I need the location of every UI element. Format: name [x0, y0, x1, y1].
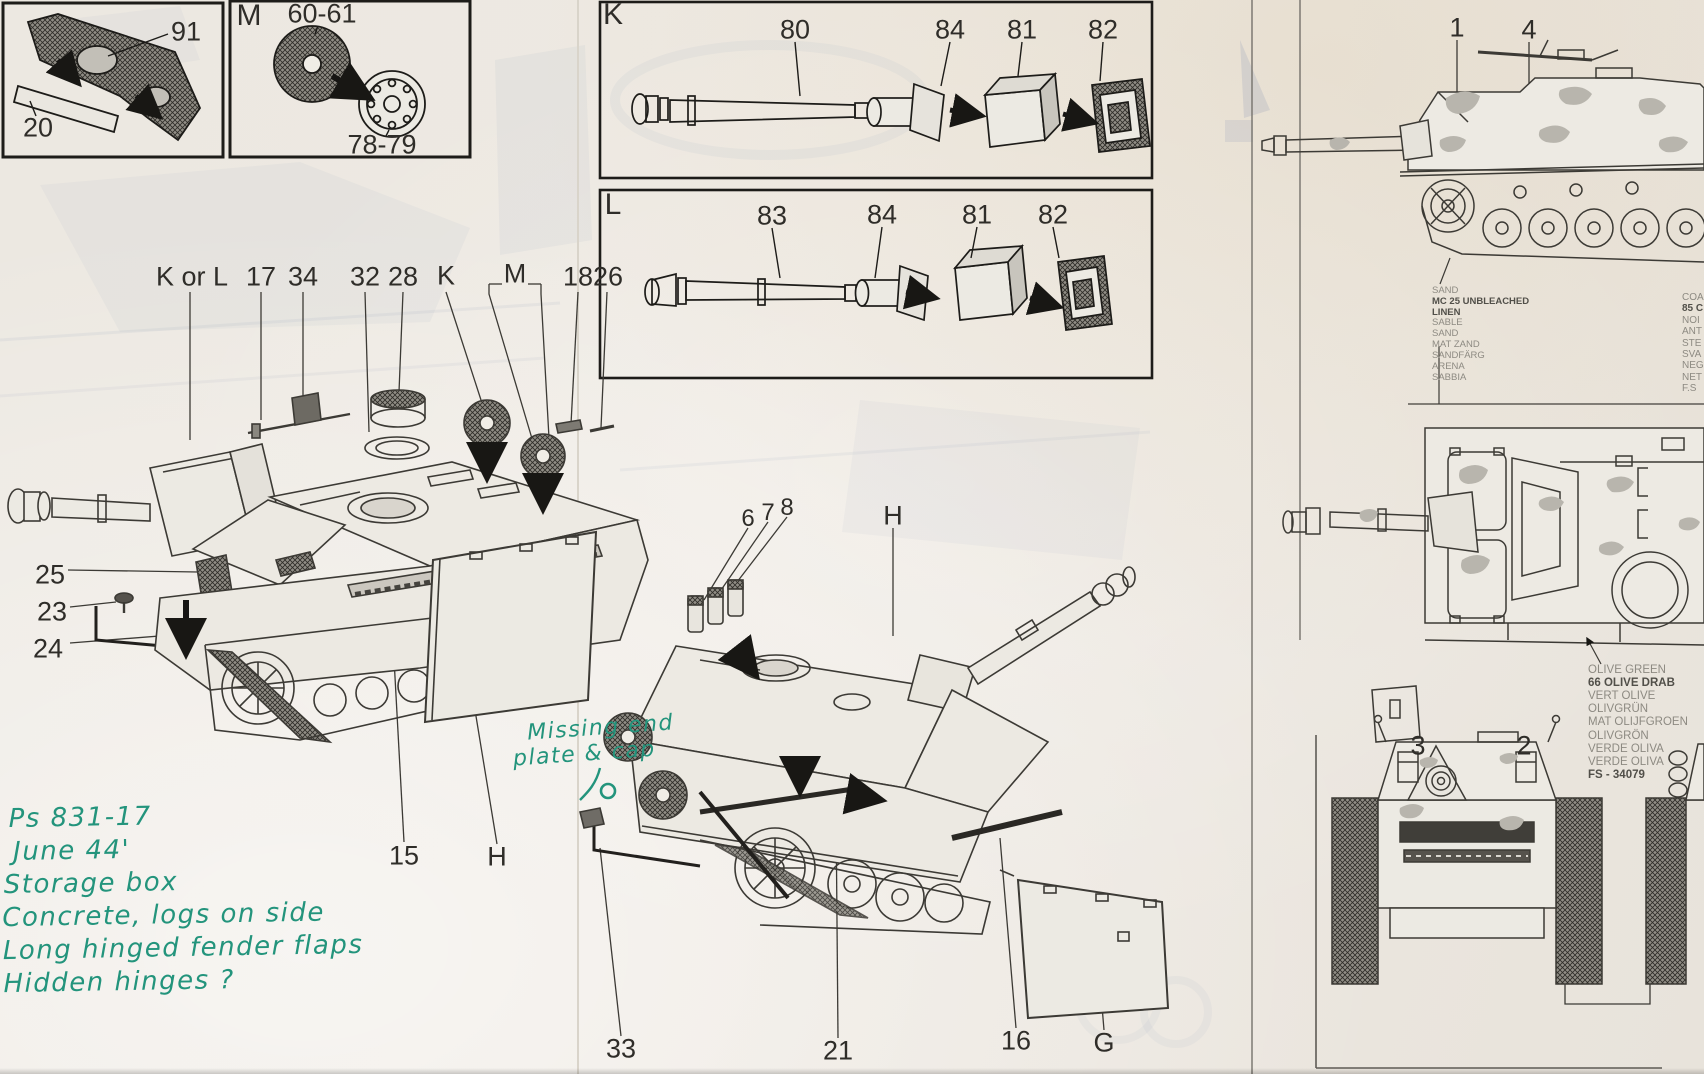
olive-line: MAT OLIJFGROEN	[1588, 716, 1688, 729]
view1-label-17: 17	[246, 262, 276, 293]
edge-line: SVA	[1682, 349, 1704, 360]
olive-line: VERDE OLIVA	[1588, 743, 1688, 756]
instruction-sheet-page: 91 20 M 60-61 78-79 K 80 84 81 82 L 83 8…	[0, 0, 1704, 1074]
handwritten-leader-marks	[580, 768, 615, 800]
olive-line: 66 OLIVE DRAB	[1588, 677, 1688, 690]
view2-label-g: G	[1093, 1028, 1114, 1059]
edge-line: ANT	[1682, 326, 1704, 337]
handwritten-note-reference: Ps 831-17 June 44' Storage box Concrete,…	[0, 797, 364, 1001]
part-label-k-82: 82	[1088, 15, 1118, 46]
view1-label-h: H	[487, 842, 507, 873]
part-label-78-79: 78-79	[347, 130, 416, 161]
view1-label-24: 24	[33, 634, 63, 665]
olive-line: FS - 34079	[1588, 769, 1688, 782]
paint-label-2: 2	[1516, 731, 1531, 762]
paint-label-3: 3	[1410, 731, 1425, 762]
view2-label-6: 6	[741, 505, 754, 533]
view2-label-21: 21	[823, 1036, 853, 1067]
handwritten-line: Long hinged fender flaps	[3, 929, 364, 968]
part-label-20: 20	[23, 113, 53, 144]
part-label-l-83: 83	[757, 201, 787, 232]
inset-l-letter: L	[605, 188, 622, 222]
olive-line: OLIVGRÜN	[1588, 703, 1688, 716]
inset-m-letter: M	[237, 0, 262, 33]
sand-line: SABBIA	[1432, 373, 1529, 384]
olive-color-callout: OLIVE GREEN 66 OLIVE DRAB VERT OLIVE OLI…	[1588, 664, 1688, 782]
inset-k-box	[600, 2, 1152, 178]
part-label-k-84: 84	[935, 15, 965, 46]
edge-line: NOI	[1682, 315, 1704, 326]
paint-guide-side-view	[1262, 40, 1704, 284]
view1-label-25: 25	[35, 560, 65, 591]
part-label-60-61: 60-61	[287, 0, 356, 30]
view1-label-23: 23	[37, 597, 67, 628]
view2-label-7: 7	[761, 499, 774, 527]
view1-label-18: 18	[563, 262, 593, 293]
view1-label-32: 32	[350, 262, 380, 293]
edge-line: 85 C	[1682, 303, 1704, 314]
view1-label-15: 15	[389, 841, 419, 872]
view1-label-m: M	[504, 259, 527, 290]
inset-k-letter: K	[603, 0, 623, 32]
view1-label-28: 28	[388, 262, 418, 293]
view1-label-k: K	[437, 261, 455, 292]
edge-line: F.S	[1682, 383, 1704, 394]
view2-label-16: 16	[1001, 1026, 1031, 1057]
clipped-color-callout: COA 85 C NOI ANT STE SVA NEG NET F.S	[1682, 292, 1704, 395]
edge-line: NET	[1682, 372, 1704, 383]
view1-label-k-or-l: K or L	[156, 262, 228, 293]
edge-line: NEG	[1682, 360, 1704, 371]
part-label-l-84: 84	[867, 200, 897, 231]
view1-label-34: 34	[288, 262, 318, 293]
view2-label-33: 33	[606, 1034, 636, 1065]
paint-label-1: 1	[1449, 13, 1464, 44]
edge-line: COA	[1682, 292, 1704, 303]
part-label-91: 91	[171, 17, 201, 48]
olive-line: VERDE OLIVA	[1588, 756, 1688, 769]
handwritten-line: Hidden hinges ?	[3, 962, 364, 1001]
part-label-k-81: 81	[1007, 15, 1037, 46]
edge-line: STE	[1682, 338, 1704, 349]
sand-color-callout: SAND MC 25 UNBLEACHED LINEN SABLE SAND M…	[1432, 286, 1529, 383]
paint-label-4: 4	[1521, 15, 1536, 46]
olive-line: OLIVE GREEN	[1588, 664, 1688, 677]
view2-label-h: H	[883, 501, 903, 532]
olive-line: OLIVGRÖN	[1588, 730, 1688, 743]
part-label-k-80: 80	[780, 15, 810, 46]
view1-label-26: 26	[593, 262, 623, 293]
part-label-l-81: 81	[962, 200, 992, 231]
paint-guide-plan-view	[1283, 346, 1704, 664]
sand-line: ARENA	[1432, 362, 1529, 373]
part-label-l-82: 82	[1038, 200, 1068, 231]
exploded-view-2-drawing	[580, 517, 1168, 1038]
view2-label-8: 8	[780, 494, 793, 522]
scan-edge-shadow	[0, 1068, 1704, 1074]
olive-line: VERT OLIVE	[1588, 690, 1688, 703]
